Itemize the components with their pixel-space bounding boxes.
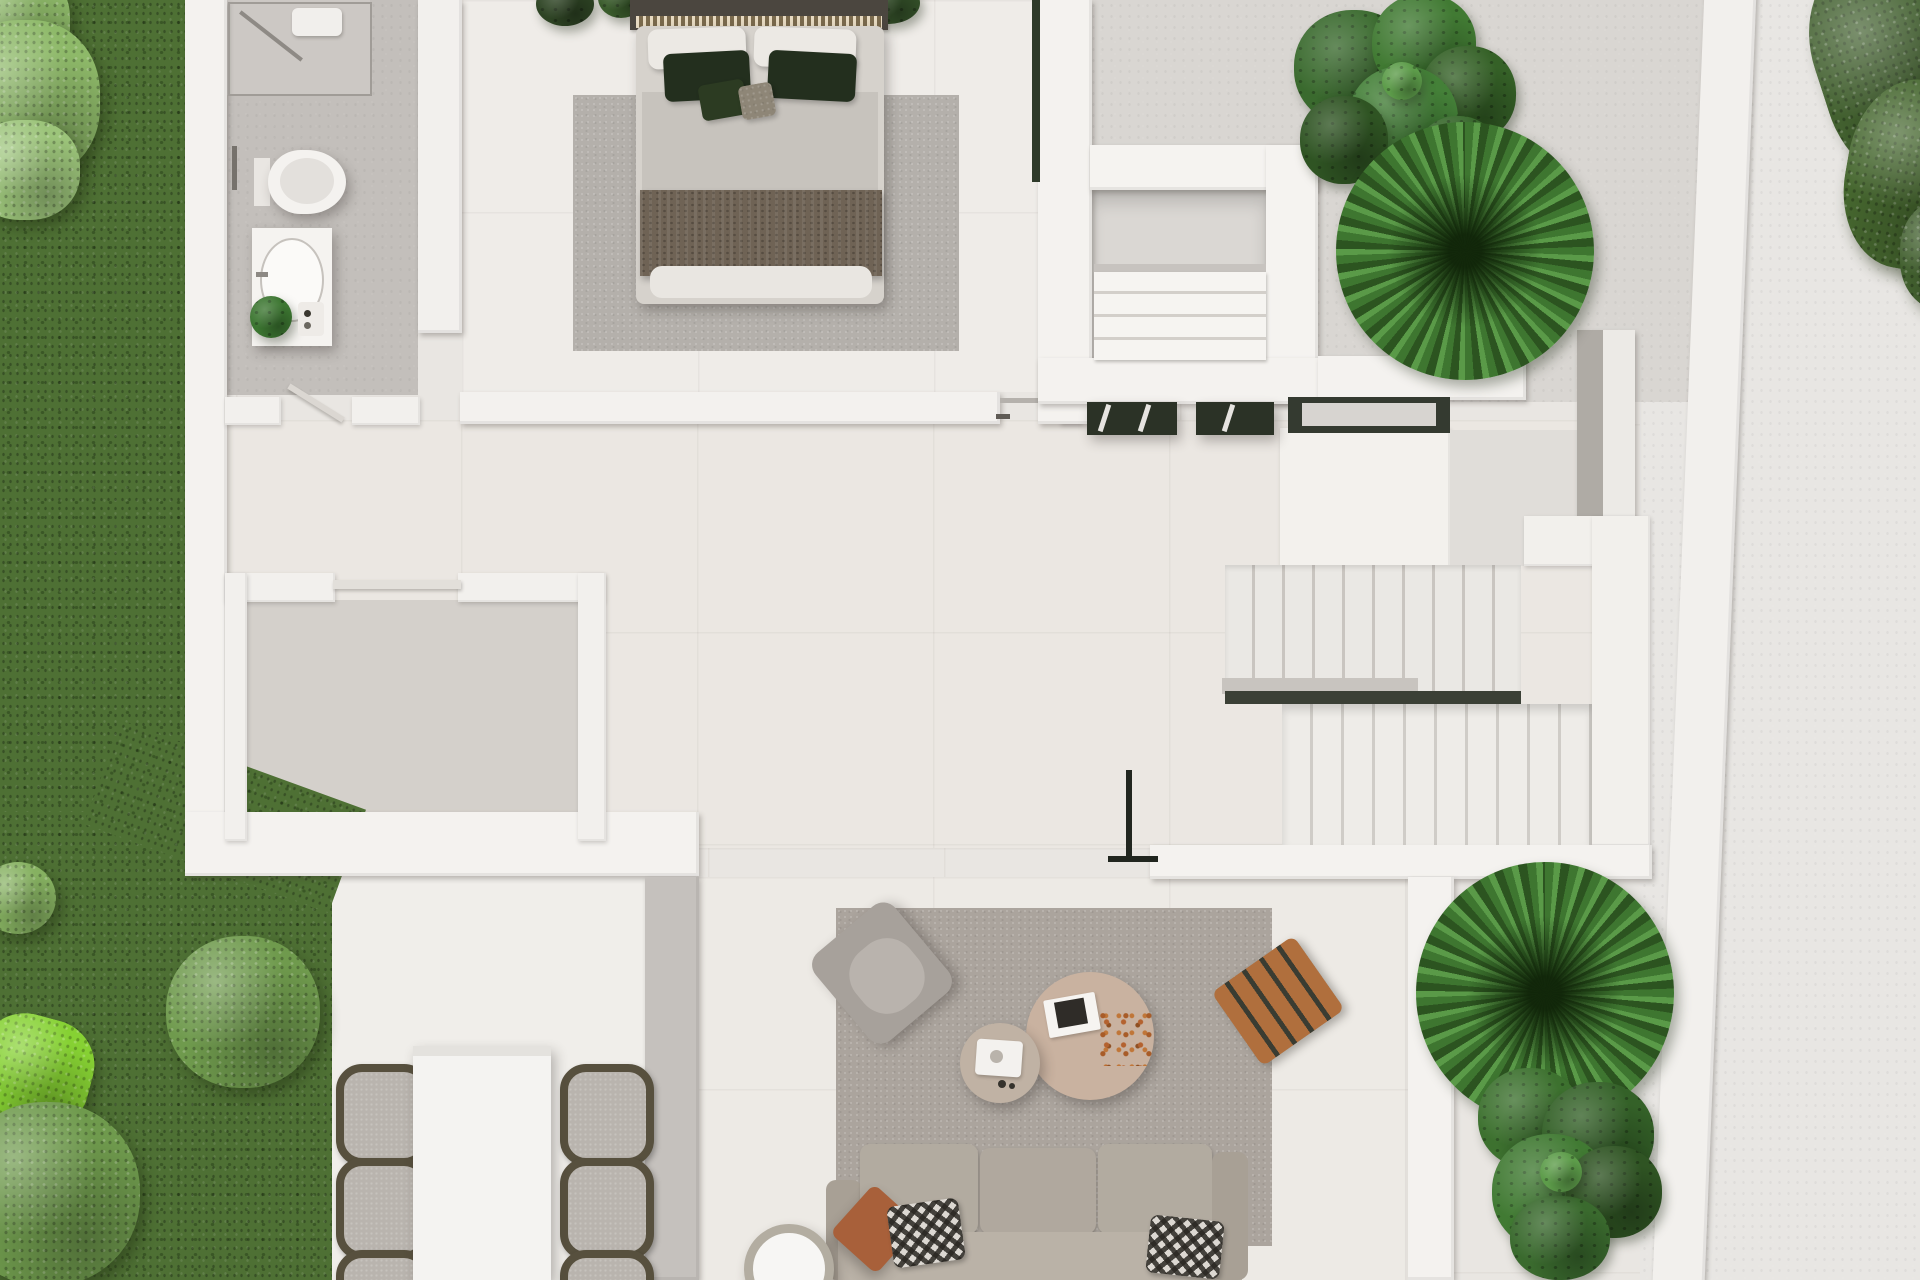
- wall-study-west: [225, 573, 247, 841]
- dining-table: [413, 1046, 551, 1280]
- tray-dot-1: [998, 1080, 1006, 1088]
- tray-cup: [990, 1050, 1003, 1063]
- wall-stair-east-lower: [1592, 516, 1650, 846]
- wall-closet-south: [1038, 358, 1326, 404]
- media-bench-b: [1196, 402, 1274, 435]
- bedroom-door-stop: [996, 414, 1010, 419]
- coffee-table-book-dark: [1054, 998, 1088, 1029]
- stair-flight-upper: [1225, 565, 1521, 693]
- stair-flight-lower: [1282, 704, 1592, 845]
- glass-door-frame-vertical: [1126, 770, 1132, 862]
- floorplan-canvas: [0, 0, 1920, 1280]
- closet-shelves: [1094, 272, 1266, 360]
- fig-plant-br-highlight: [1540, 1152, 1582, 1192]
- doormat-center: [1302, 403, 1436, 426]
- study-floor: [245, 600, 578, 814]
- dining-table-edge: [413, 1046, 551, 1056]
- stair-nosing-dark: [1225, 691, 1521, 704]
- wall-bathroom-south-a: [225, 397, 281, 425]
- dining-chair-right-1: [560, 1064, 654, 1166]
- glass-door-frame-horizontal: [1108, 856, 1158, 862]
- shower-bench: [292, 8, 342, 36]
- dining-chair-right-2: [560, 1158, 654, 1260]
- wall-bedroom-south-a: [460, 392, 1000, 424]
- bed-sheet-fold: [650, 266, 872, 298]
- sofa-back-cushion-2: [980, 1148, 1096, 1234]
- pillow-accent-gray: [737, 81, 776, 120]
- coffee-table-twigs: [1096, 1010, 1152, 1066]
- wall-outer-left: [185, 0, 227, 846]
- toilet-seat-line: [280, 158, 334, 204]
- palm-plant-tr: [1336, 122, 1594, 380]
- fig-plant-br-leaf-5: [1510, 1196, 1610, 1280]
- vanity-tray-dot-1: [304, 310, 311, 317]
- bed-throw-blanket: [640, 190, 882, 276]
- pillow-dark-right: [767, 50, 857, 103]
- study-door-panel: [333, 580, 461, 589]
- wall-study-east: [578, 573, 606, 841]
- towel-bar: [232, 146, 237, 190]
- stair-landing-block: [1280, 428, 1450, 568]
- divider-glass-dark: [1032, 0, 1040, 182]
- dining-chair-right-3: [560, 1250, 654, 1280]
- vanity-tray-dot-2: [304, 322, 311, 329]
- vanity-plant: [250, 296, 292, 338]
- wall-southwest-band: [185, 812, 699, 876]
- vanity-tray: [298, 302, 324, 336]
- wall-bathroom-east: [418, 0, 462, 333]
- sofa-pillow-checkered-2: [1145, 1214, 1225, 1279]
- bush-mid-left: [166, 936, 320, 1088]
- sofa-pillow-checkered-1: [886, 1197, 966, 1268]
- fig-plant-tr-highlight: [1382, 62, 1422, 100]
- wall-bathroom-south-b: [352, 397, 420, 425]
- vanity-faucet: [256, 272, 268, 277]
- tray-dot-2: [1009, 1083, 1015, 1089]
- floorplan-scene: [0, 0, 1920, 1280]
- wall-stair-east-upper: [1577, 330, 1635, 542]
